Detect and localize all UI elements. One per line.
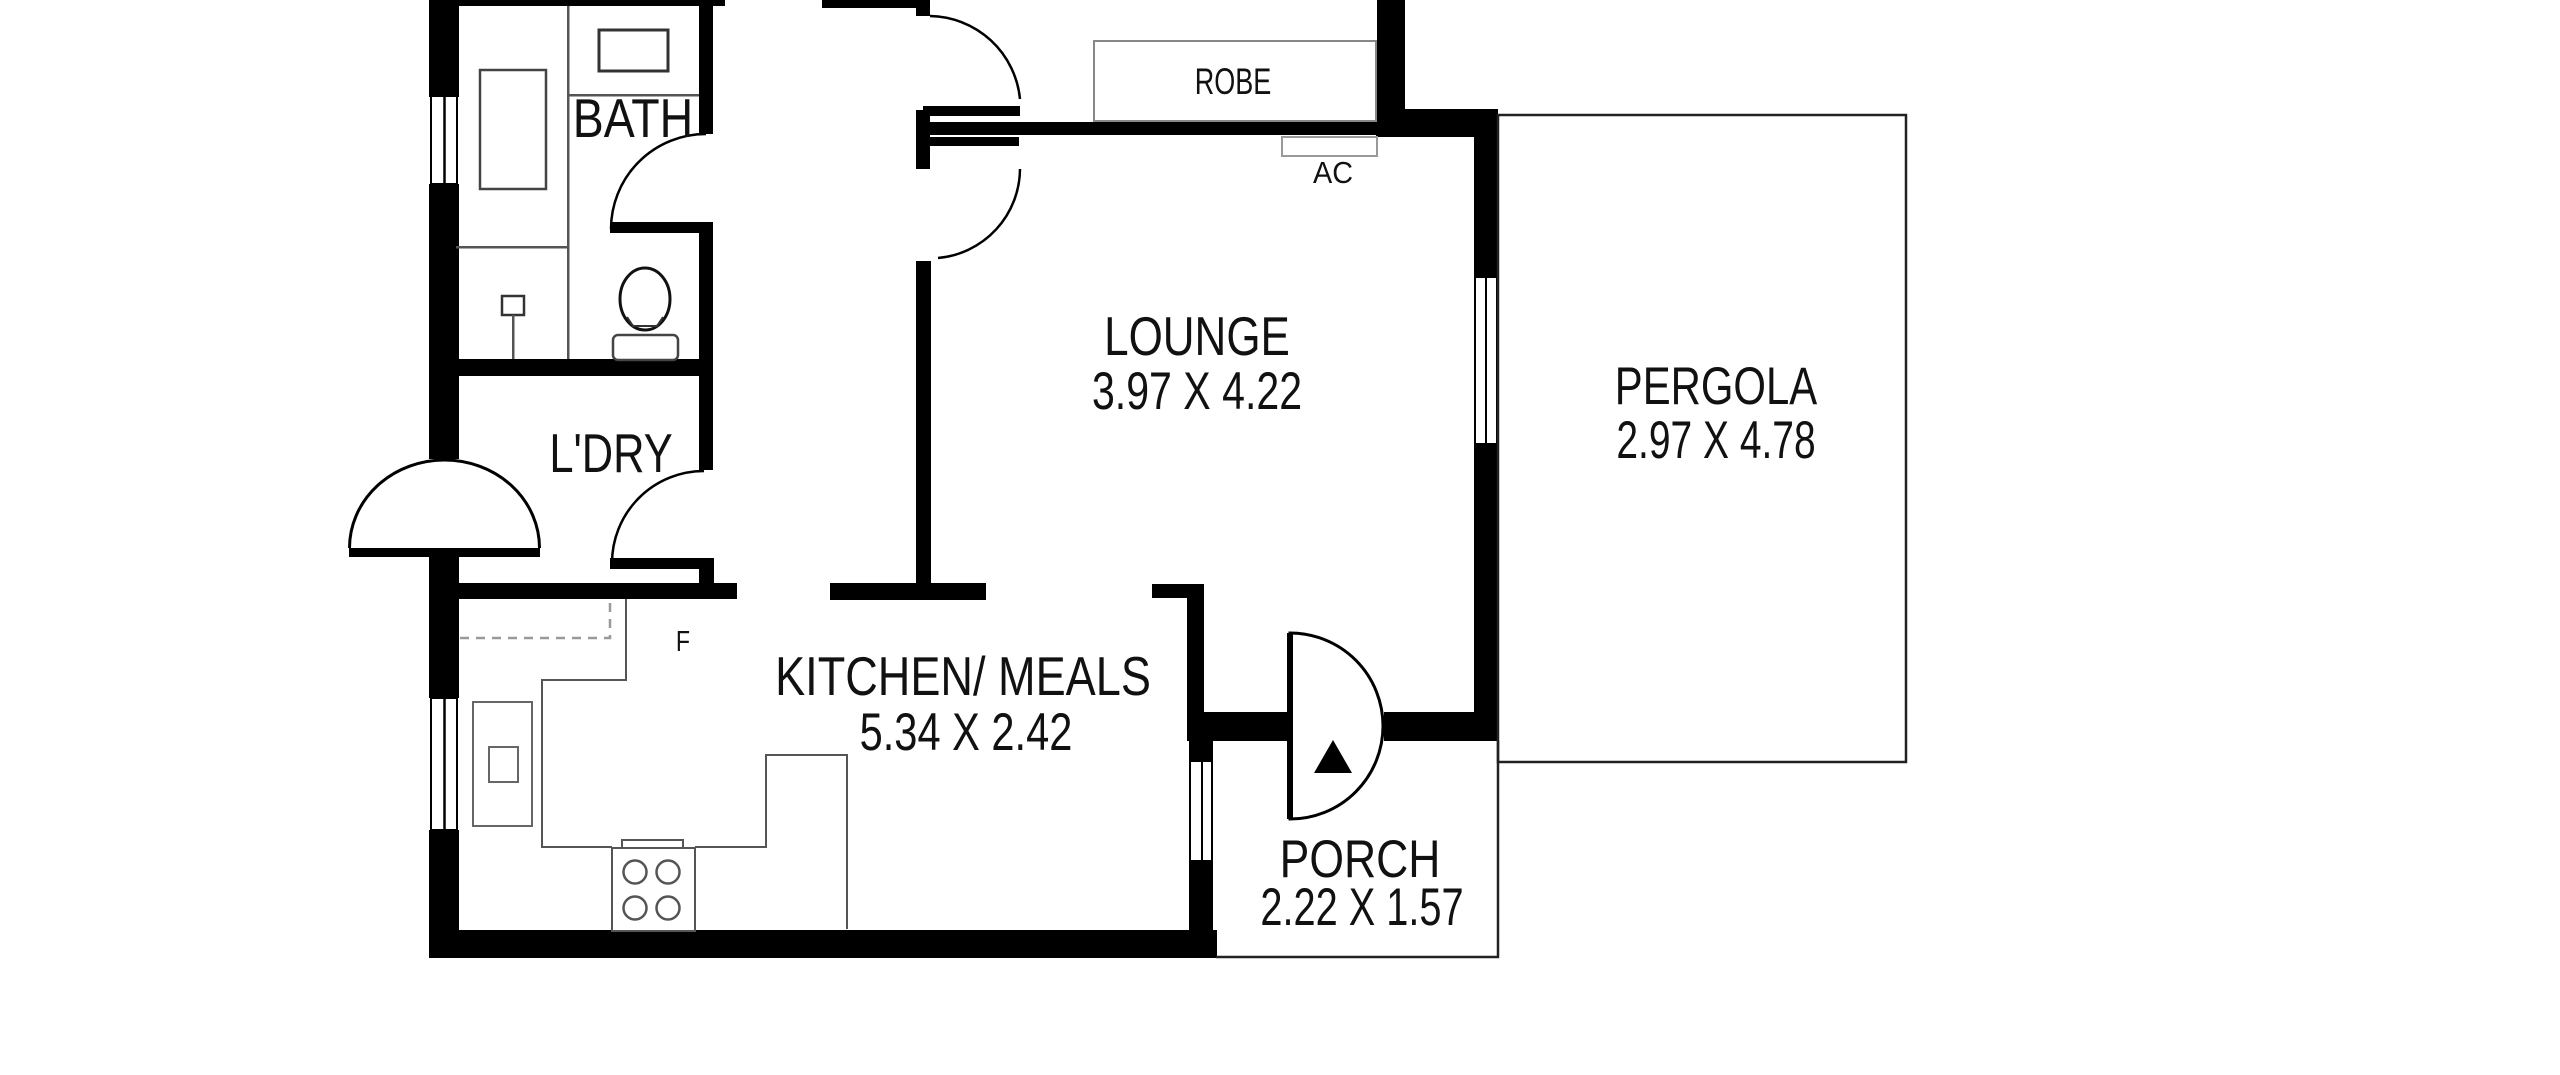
- svg-text:BATH: BATH: [573, 87, 693, 149]
- svg-text:2.22 X 1.57: 2.22 X 1.57: [1260, 877, 1463, 936]
- svg-text:3.97 X 4.22: 3.97 X 4.22: [1092, 362, 1302, 421]
- svg-text:F: F: [676, 624, 690, 657]
- svg-text:L'DRY: L'DRY: [549, 422, 672, 484]
- svg-text:AC: AC: [1313, 156, 1353, 190]
- svg-text:ROBE: ROBE: [1195, 61, 1272, 102]
- svg-text:5.34 X 2.42: 5.34 X 2.42: [860, 703, 1073, 762]
- svg-text:PERGOLA: PERGOLA: [1615, 357, 1818, 416]
- svg-text:KITCHEN/ MEALS: KITCHEN/ MEALS: [775, 645, 1151, 707]
- svg-text:2.97 X 4.78: 2.97 X 4.78: [1616, 410, 1815, 469]
- svg-text:LOUNGE: LOUNGE: [1104, 305, 1290, 367]
